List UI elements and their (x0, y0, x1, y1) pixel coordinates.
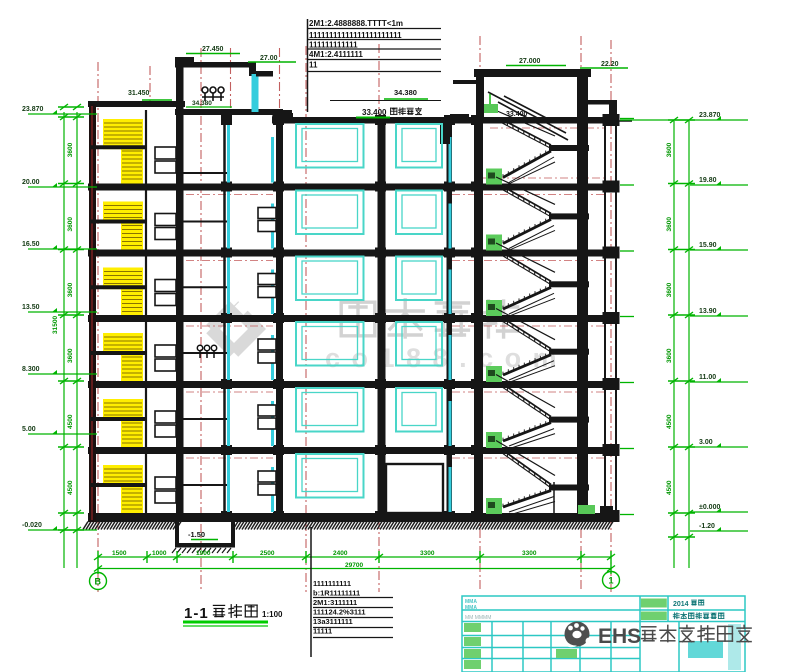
svg-text:13a3111111: 13a3111111 (313, 617, 353, 626)
svg-text:15.90: 15.90 (699, 242, 717, 249)
svg-text:3600: 3600 (666, 217, 673, 232)
svg-text:13.50: 13.50 (22, 304, 40, 311)
svg-text:4500: 4500 (666, 480, 673, 495)
svg-text:16.50: 16.50 (22, 241, 40, 248)
svg-text:2M1:2.4888888.TTTT<1m: 2M1:2.4888888.TTTT<1m (309, 19, 403, 28)
svg-text:20.00: 20.00 (22, 179, 40, 186)
svg-text:B: B (95, 577, 102, 587)
svg-text:MMA: MMA (465, 605, 477, 611)
svg-text:-1.20: -1.20 (699, 523, 715, 530)
svg-text:4500: 4500 (67, 480, 74, 495)
svg-text:11111111111111111111111: 11111111111111111111111 (309, 31, 402, 40)
svg-text:111111111111: 111111111111 (309, 41, 358, 50)
svg-text:1500: 1500 (112, 550, 127, 557)
svg-text:3600: 3600 (666, 142, 673, 157)
svg-text:33.400: 33.400 (362, 108, 387, 117)
svg-text:3600: 3600 (666, 282, 673, 297)
svg-text:23.870: 23.870 (699, 112, 721, 119)
svg-text:±0.000: ±0.000 (699, 504, 720, 511)
svg-text:2400: 2400 (333, 550, 348, 557)
svg-text:b:1R11111111: b:1R11111111 (313, 589, 360, 598)
svg-text:2014: 2014 (673, 601, 689, 608)
svg-text:27.000: 27.000 (519, 58, 541, 65)
svg-text:29700: 29700 (345, 562, 363, 569)
svg-text:34.380: 34.380 (394, 88, 417, 97)
svg-text:19.80: 19.80 (699, 177, 717, 184)
svg-text:3300: 3300 (420, 550, 435, 557)
svg-text:31.450: 31.450 (128, 90, 150, 97)
svg-text:23.870: 23.870 (22, 106, 44, 113)
svg-text:11111: 11111 (313, 627, 332, 636)
svg-text:3600: 3600 (67, 142, 74, 157)
svg-text:8.300: 8.300 (22, 366, 40, 373)
svg-text:2M1:3111111: 2M1:3111111 (313, 598, 357, 607)
svg-text:1111111111: 1111111111 (313, 579, 351, 588)
svg-text:2500: 2500 (260, 550, 275, 557)
svg-text:27.450: 27.450 (202, 46, 224, 53)
svg-text:31500: 31500 (52, 316, 59, 334)
svg-text:11.00: 11.00 (699, 374, 716, 381)
svg-text:-0.020: -0.020 (22, 522, 42, 529)
svg-text:5.00: 5.00 (22, 426, 36, 433)
svg-text:3300: 3300 (522, 550, 537, 557)
svg-text:1: 1 (609, 576, 614, 586)
svg-text:111124.2%3111: 111124.2%3111 (313, 608, 366, 617)
svg-text:4M1:2.4111111: 4M1:2.4111111 (309, 50, 363, 59)
svg-text:1-1: 1-1 (184, 605, 209, 622)
svg-text:1:100: 1:100 (262, 610, 283, 619)
svg-text:22.20: 22.20 (601, 61, 619, 68)
svg-text:4500: 4500 (666, 414, 673, 429)
svg-text:3.00: 3.00 (699, 439, 713, 446)
svg-text:13.90: 13.90 (699, 308, 717, 315)
svg-text:34.380: 34.380 (192, 100, 212, 107)
svg-text:3600: 3600 (666, 348, 673, 363)
svg-text:4500: 4500 (67, 414, 74, 429)
svg-text:3600: 3600 (67, 217, 74, 232)
svg-text:1000: 1000 (152, 550, 167, 557)
svg-text:11: 11 (309, 61, 318, 70)
svg-text:33.400: 33.400 (506, 111, 528, 118)
svg-text:3600: 3600 (67, 282, 74, 297)
svg-text:EHS: EHS (598, 625, 641, 648)
svg-text:MM MMMM: MM MMMM (465, 615, 491, 621)
svg-text:3600: 3600 (67, 348, 74, 363)
svg-text:27.00: 27.00 (260, 55, 278, 62)
svg-text:1900: 1900 (196, 550, 211, 557)
svg-text:-1.50: -1.50 (188, 530, 205, 539)
